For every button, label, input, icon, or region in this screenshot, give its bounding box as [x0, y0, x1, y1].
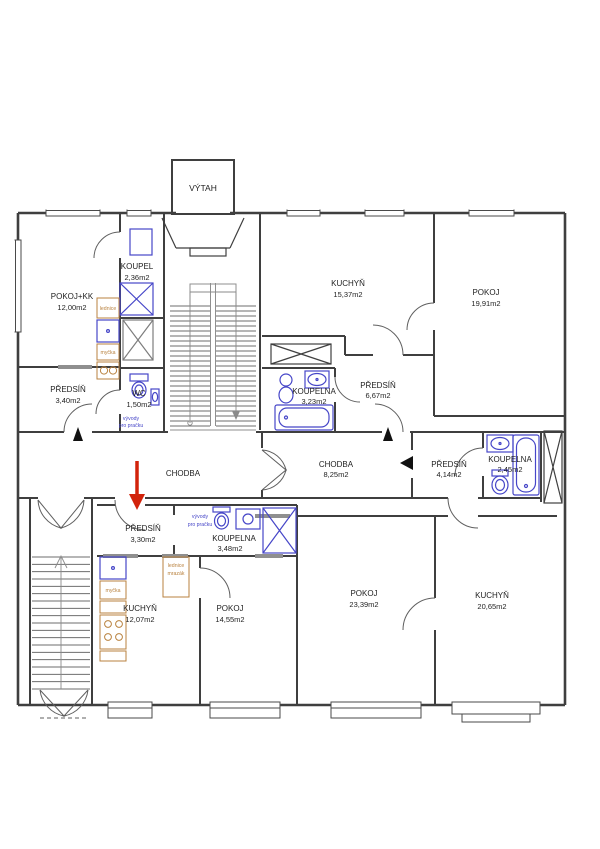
room-label-pokoj-5: POKOJ — [350, 589, 377, 598]
window-top-4 — [365, 210, 404, 217]
window-left-1 — [15, 240, 22, 332]
room-area-kuchyn-5: 20,65m2 — [477, 602, 506, 611]
fixture-labels: lednice myčka vývody pro pračku vývody p… — [100, 306, 213, 594]
room-label-predsin-1: PŘEDSÍŇ — [50, 385, 86, 394]
room-area-pokoj-2: 19,91m2 — [471, 299, 500, 308]
washer-hookup-label-2: pro pračku — [119, 423, 144, 429]
swing-door-corridor — [262, 450, 286, 490]
room-label-kuchyn-4: KUCHYŇ — [123, 604, 157, 613]
door-arc-apartment3-entrance — [448, 498, 478, 528]
dishwasher-label: myčka — [106, 588, 121, 594]
kitchen-strip-4 — [100, 557, 126, 661]
room-label-koupelna-2: KOUPELNA — [292, 387, 336, 396]
toilet-icon — [213, 507, 230, 529]
room-label-chodba-r: CHODBA — [319, 460, 354, 469]
cabinet-icon — [100, 601, 126, 613]
room-area-predsin-2: 6,67m2 — [365, 391, 390, 400]
door-arc-pokoj-1455 — [200, 568, 230, 598]
door-arc-apartment2-entrance — [375, 404, 403, 432]
entrance-marker-icon — [383, 427, 393, 441]
room-label-koupelna-4: KOUPELNA — [212, 534, 256, 543]
door-arc-wc — [96, 390, 120, 414]
room-label-kuchyn-5: KUCHYŇ — [475, 591, 509, 600]
washbasin-icon — [236, 509, 260, 529]
entrance-marker-icon — [400, 456, 413, 470]
window-bottom-2 — [210, 702, 280, 718]
room-label-kuchyn-2: KUCHYŇ — [331, 279, 365, 288]
room-label-pokoj-2: POKOJ — [472, 288, 499, 297]
room-label-koupelna-3: KOUPELNA — [488, 455, 532, 464]
floor-plan-svg: VÝTAH — [0, 0, 600, 849]
arrow-head-icon — [129, 494, 145, 510]
side-staircase — [32, 500, 90, 718]
stove-icon — [97, 362, 119, 379]
room-area-pokoj-5: 23,39m2 — [349, 600, 378, 609]
elevator-landing-walls — [162, 218, 244, 248]
window-top-3 — [287, 210, 320, 217]
room-area-chodba-r: 8,25m2 — [323, 470, 348, 479]
washer-hookup-label-1: vývody — [192, 514, 209, 520]
shower-icon — [120, 283, 153, 315]
entrance-arrow — [129, 461, 145, 510]
door-arc-koupel — [94, 232, 120, 258]
room-area-koupelna-3: 2,45m2 — [497, 465, 522, 474]
sink-icon — [100, 557, 126, 579]
shaft-hatched-3 — [544, 431, 562, 503]
window-top-1 — [46, 210, 100, 217]
door-arc-kuchyn-pokoj — [407, 303, 434, 330]
washer-hookup-label-2: pro pračku — [188, 522, 213, 528]
shaft-hatched-1 — [123, 320, 153, 360]
entrance-markers — [73, 427, 413, 470]
room-label-wc: WC — [132, 389, 146, 398]
shaft-hatched-2 — [271, 344, 331, 364]
sink-icon — [487, 435, 513, 452]
room-label-pokoj-4: POKOJ — [216, 604, 243, 613]
stove-icon — [100, 615, 126, 649]
bay-window-bottom — [452, 702, 540, 722]
elevator-door — [190, 248, 226, 256]
room-area-kuchyn-2: 15,37m2 — [333, 290, 362, 299]
fridge-label: lednice — [100, 306, 117, 312]
room-area-predsin-3: 4,14m2 — [436, 470, 461, 479]
room-area-predsin-4: 3,30m2 — [130, 535, 155, 544]
room-area-pokoj-kk: 12,00m2 — [57, 303, 86, 312]
sink-icon — [305, 371, 329, 388]
sink-icon — [97, 320, 119, 342]
toilet-icon — [279, 374, 293, 403]
window-top-5 — [469, 210, 514, 217]
door-arc-kuchyn-2065 — [403, 598, 435, 630]
elevator: VÝTAH — [162, 160, 244, 256]
room-label-predsin-2: PŘEDSÍŇ — [360, 381, 396, 390]
room-area-pokoj-4: 14,55m2 — [215, 615, 244, 624]
room-label-predsin-3: PŘEDSÍŇ — [431, 460, 467, 469]
floor-plan-page: VÝTAH — [0, 0, 600, 849]
room-area-wc: 1,50m2 — [126, 400, 151, 409]
window-top-2 — [127, 210, 151, 217]
room-area-kuchyn-4: 12,07m2 — [125, 615, 154, 624]
room-labels: POKOJ+KK 12,00m2 KOUPEL 2,36m2 PŘEDSÍŇ 3… — [50, 262, 532, 624]
washing-machine-icon — [130, 229, 152, 255]
elevator-label: VÝTAH — [189, 183, 217, 193]
window-bottom-1 — [108, 702, 152, 718]
hand-basin-icon — [151, 389, 159, 405]
bathtub-icon — [275, 405, 333, 430]
room-label-pokoj-kk: POKOJ+KK — [51, 292, 94, 301]
room-label-chodba-l: CHODBA — [166, 469, 201, 478]
room-label-predsin-4: PŘEDSÍŇ — [125, 524, 161, 533]
washer-hookup-label-1: vývody — [123, 416, 140, 422]
room-area-koupel: 2,36m2 — [124, 273, 149, 282]
door-arc-kuchyn-predsin — [373, 325, 403, 355]
door-arc-koupelna-323 — [335, 377, 360, 402]
room-label-koupel: KOUPEL — [121, 262, 154, 271]
main-staircase — [170, 282, 256, 430]
swing-door-stair-top — [38, 500, 84, 528]
room-area-koupelna-4: 3,48m2 — [217, 544, 242, 553]
dishwasher-label: myčka — [101, 350, 116, 356]
room-area-predsin-1: 3,40m2 — [55, 396, 80, 405]
window-bottom-3 — [331, 702, 421, 718]
cabinet-icon — [100, 651, 126, 661]
freezer-label: mrazák — [167, 571, 184, 577]
fridge-label: lednice — [168, 563, 185, 569]
entrance-marker-icon — [73, 427, 83, 441]
room-area-koupelna-2: 3,23m2 — [301, 397, 326, 406]
